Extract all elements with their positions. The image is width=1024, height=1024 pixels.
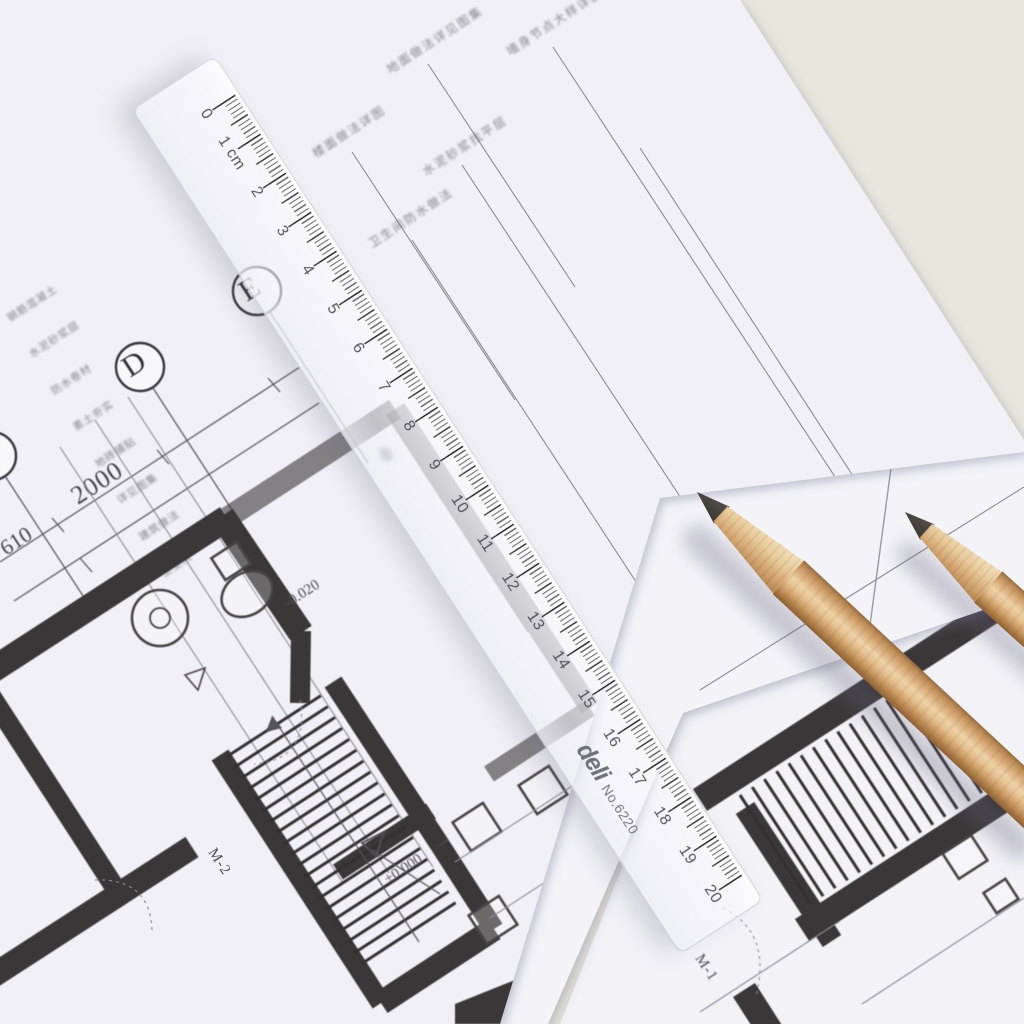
ruler-number: 9	[414, 441, 454, 489]
ruler-number: 19	[667, 831, 707, 879]
ruler-number: 0	[186, 90, 226, 138]
ruler-number: 10	[439, 480, 479, 528]
toilet-fixture	[132, 590, 188, 646]
ruler-number: 4	[287, 246, 327, 294]
ruler-number: 20	[692, 870, 732, 918]
ruler-number: 6	[338, 324, 378, 372]
ruler-number: 12	[490, 558, 530, 606]
ruler-number: 1 cm	[211, 129, 251, 177]
ruler-number: 7	[363, 363, 403, 411]
ruler-number: 14	[540, 636, 580, 684]
ruler-number: 8	[388, 402, 428, 450]
ruler-number: 2	[237, 168, 277, 216]
ruler-number: 13	[515, 597, 555, 645]
ruler-number: 15	[566, 675, 606, 723]
ruler-number: 11	[464, 519, 504, 567]
ruler-number: 5	[313, 285, 353, 333]
ruler-number: 18	[642, 792, 682, 840]
ruler-number: 3	[262, 207, 302, 255]
